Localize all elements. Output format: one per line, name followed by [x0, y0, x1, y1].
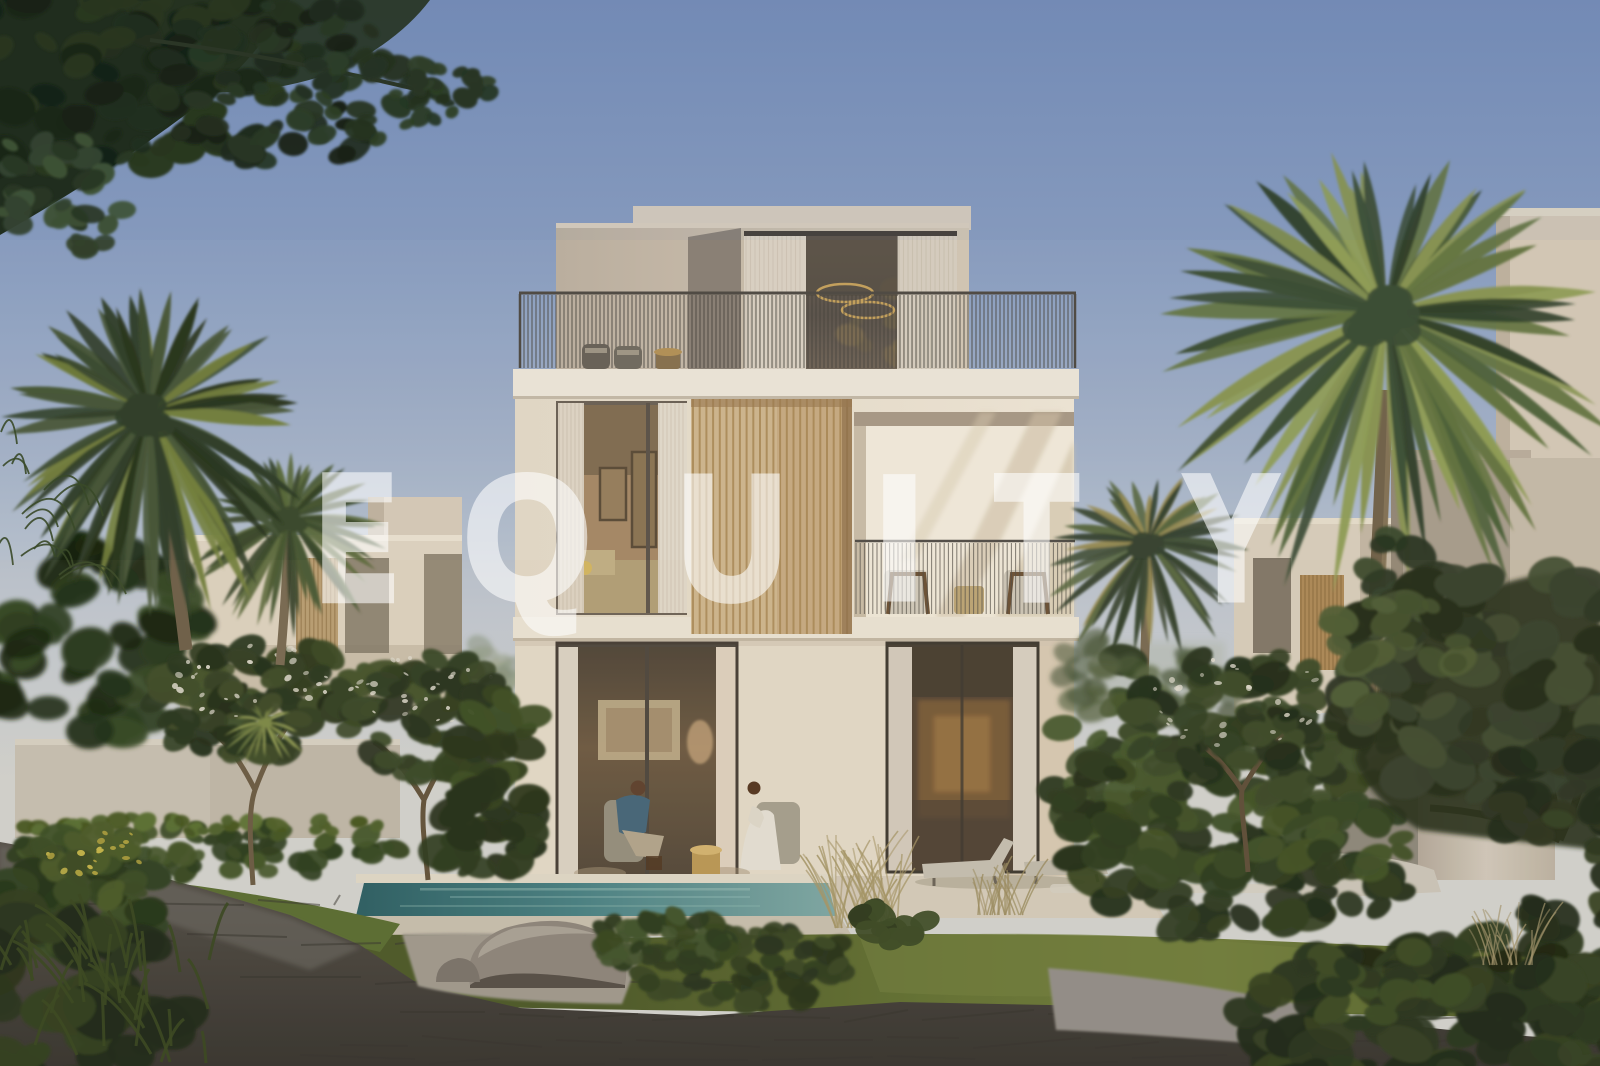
svg-text:Q: Q [464, 440, 591, 636]
svg-text:T: T [996, 439, 1077, 635]
svg-text:Y: Y [1185, 440, 1277, 635]
svg-text:U: U [679, 441, 785, 636]
svg-text:E: E [318, 441, 395, 636]
svg-text:I: I [875, 441, 924, 636]
